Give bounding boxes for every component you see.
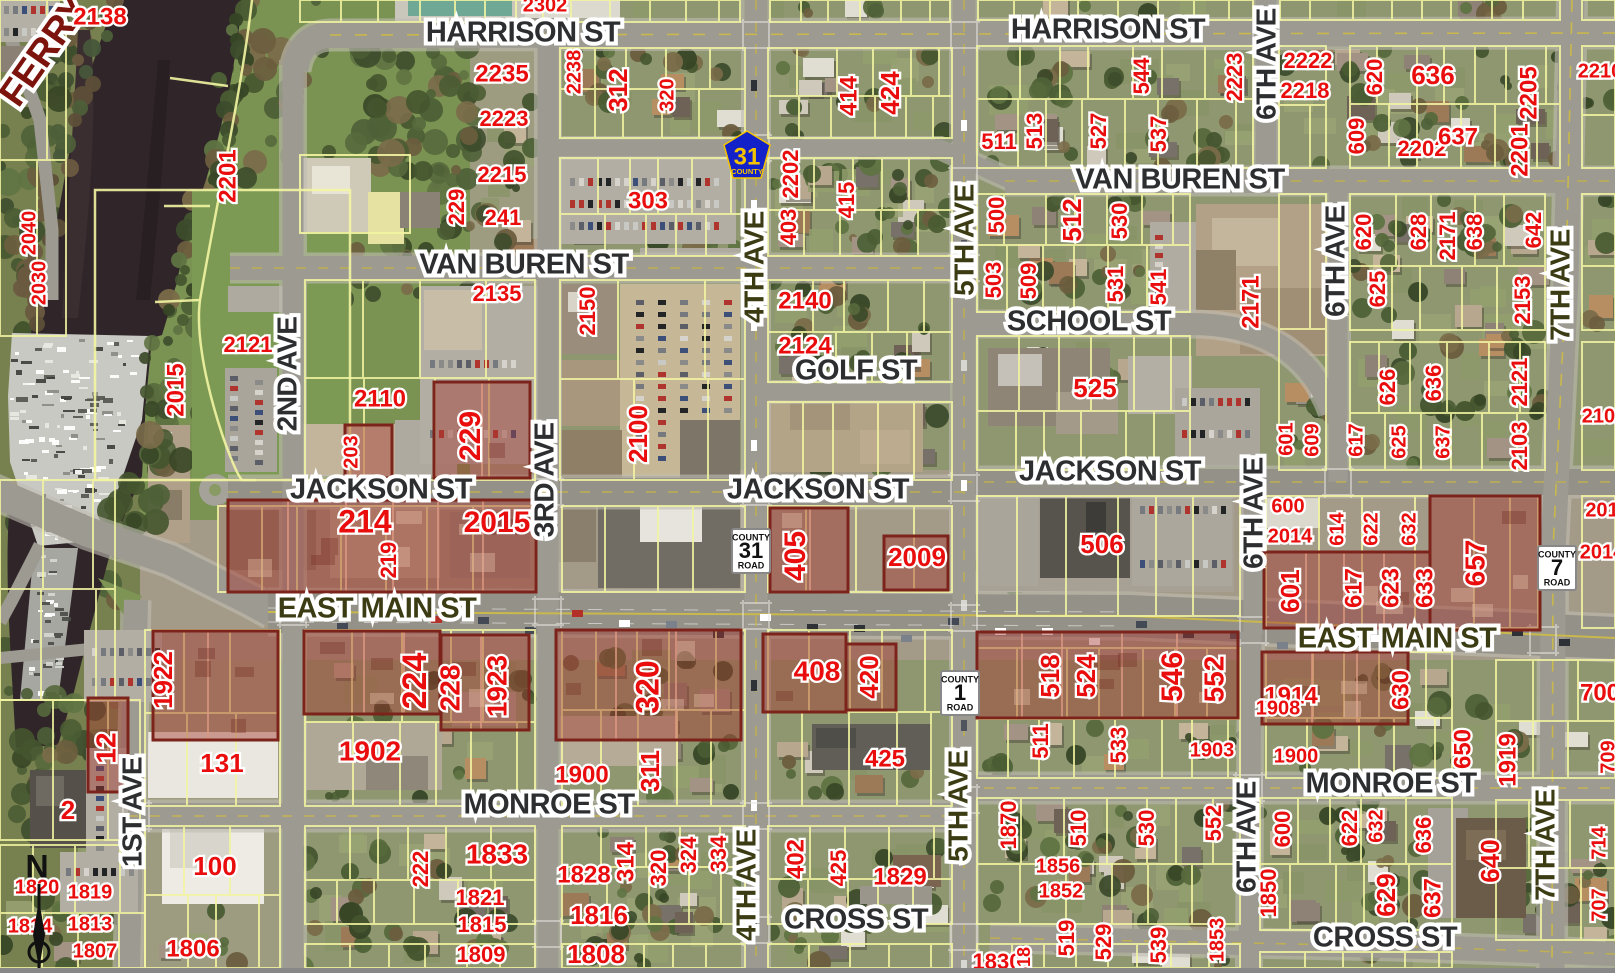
svg-text:2201: 2201 — [1506, 123, 1533, 176]
svg-text:2171: 2171 — [1237, 275, 1264, 328]
svg-text:636: 636 — [1411, 60, 1454, 90]
svg-text:530: 530 — [1107, 203, 1132, 240]
svg-text:632: 632 — [1365, 809, 1387, 842]
svg-text:714: 714 — [1588, 825, 1610, 859]
svg-text:531: 531 — [1103, 266, 1128, 303]
svg-text:529: 529 — [1091, 924, 1116, 961]
svg-text:1903: 1903 — [1190, 739, 1235, 761]
svg-text:314: 314 — [612, 841, 639, 882]
svg-text:617: 617 — [1345, 423, 1367, 456]
svg-text:625: 625 — [1388, 425, 1410, 458]
svg-text:6TH AVE: 6TH AVE — [1319, 205, 1350, 317]
svg-text:408: 408 — [794, 655, 841, 686]
svg-text:519: 519 — [1054, 920, 1079, 957]
svg-text:203: 203 — [340, 435, 362, 468]
svg-text:1828: 1828 — [557, 861, 610, 888]
svg-text:626: 626 — [1375, 369, 1400, 406]
svg-text:2238: 2238 — [563, 50, 585, 95]
svg-text:1902: 1902 — [339, 735, 401, 766]
svg-text:623: 623 — [1377, 568, 1404, 608]
svg-text:601: 601 — [1275, 422, 1297, 455]
svg-text:600: 600 — [1271, 495, 1304, 517]
svg-text:518: 518 — [1035, 654, 1065, 697]
svg-text:510: 510 — [1066, 810, 1091, 847]
svg-text:630: 630 — [1387, 670, 1414, 710]
svg-text:HARRISON ST: HARRISON ST — [1011, 14, 1206, 46]
svg-text:241: 241 — [485, 205, 522, 230]
svg-text:1850: 1850 — [1256, 869, 1281, 918]
svg-text:JACKSON ST: JACKSON ST — [727, 474, 910, 506]
svg-text:2215: 2215 — [478, 162, 527, 187]
svg-text:2223: 2223 — [1222, 53, 1247, 102]
svg-text:617: 617 — [1340, 568, 1367, 608]
svg-text:VAN BUREN ST: VAN BUREN ST — [1075, 164, 1285, 196]
svg-text:2140: 2140 — [778, 287, 831, 314]
svg-text:2103: 2103 — [1507, 422, 1532, 471]
svg-text:425: 425 — [865, 745, 905, 772]
svg-text:1852: 1852 — [1039, 880, 1084, 902]
svg-text:518: 518 — [1014, 947, 1034, 968]
svg-text:1806: 1806 — [166, 935, 219, 962]
svg-text:4TH AVE: 4TH AVE — [738, 211, 769, 323]
svg-text:1ST AVE: 1ST AVE — [116, 757, 147, 867]
svg-text:222: 222 — [408, 851, 433, 888]
svg-text:N: N — [25, 848, 48, 884]
svg-text:1923: 1923 — [481, 655, 512, 717]
svg-text:640: 640 — [1475, 839, 1505, 882]
svg-text:312: 312 — [603, 68, 633, 111]
svg-text:1900: 1900 — [555, 761, 608, 788]
svg-text:2302: 2302 — [523, 0, 568, 16]
svg-text:2218: 2218 — [1281, 78, 1330, 103]
svg-text:620: 620 — [1351, 214, 1376, 251]
svg-text:405: 405 — [779, 531, 812, 581]
svg-text:700: 700 — [1580, 679, 1615, 706]
svg-text:1: 1 — [954, 680, 966, 705]
svg-text:628: 628 — [1406, 214, 1431, 251]
svg-text:1900: 1900 — [1274, 745, 1319, 767]
svg-text:2014: 2014 — [1268, 525, 1313, 547]
svg-text:2040: 2040 — [18, 211, 40, 256]
svg-text:650: 650 — [1449, 729, 1476, 769]
svg-text:EAST MAIN ST: EAST MAIN ST — [1298, 623, 1497, 655]
svg-text:5TH AVE: 5TH AVE — [948, 184, 979, 296]
svg-text:527: 527 — [1086, 113, 1111, 150]
svg-text:2124: 2124 — [778, 332, 832, 359]
svg-text:CROSS ST: CROSS ST — [784, 904, 929, 936]
svg-text:EAST MAIN ST: EAST MAIN ST — [278, 593, 477, 625]
svg-text:530: 530 — [1134, 810, 1159, 847]
svg-text:1870: 1870 — [996, 801, 1021, 850]
svg-text:228: 228 — [434, 665, 465, 712]
svg-text:636: 636 — [1411, 817, 1436, 854]
svg-text:2205: 2205 — [1515, 66, 1542, 119]
svg-text:MONROE ST: MONROE ST — [463, 789, 635, 821]
svg-text:503: 503 — [981, 262, 1006, 299]
svg-text:637: 637 — [1419, 878, 1446, 918]
svg-text:2210: 2210 — [1578, 60, 1615, 82]
svg-text:2100: 2100 — [623, 405, 653, 463]
svg-text:636: 636 — [1421, 365, 1446, 402]
svg-text:2121: 2121 — [224, 332, 273, 357]
svg-text:509: 509 — [1016, 263, 1041, 300]
svg-text:1807: 1807 — [73, 940, 118, 962]
svg-text:1813: 1813 — [68, 913, 113, 935]
svg-text:2030: 2030 — [28, 261, 50, 306]
svg-text:3RD AVE: 3RD AVE — [528, 423, 559, 538]
svg-text:424: 424 — [875, 71, 905, 115]
svg-text:2223: 2223 — [480, 106, 529, 131]
svg-text:1819: 1819 — [68, 881, 113, 903]
svg-text:6TH AVE: 6TH AVE — [1237, 457, 1268, 569]
svg-text:637: 637 — [1438, 123, 1478, 150]
svg-text:JACKSON ST: JACKSON ST — [1019, 456, 1202, 488]
svg-text:511: 511 — [1028, 723, 1053, 759]
svg-text:1919: 1919 — [1494, 733, 1521, 786]
svg-text:303: 303 — [628, 187, 668, 214]
svg-text:552: 552 — [1201, 805, 1226, 842]
svg-text:2110: 2110 — [354, 385, 406, 412]
svg-text:544: 544 — [1129, 57, 1154, 94]
svg-text:525: 525 — [1073, 373, 1116, 403]
svg-text:2121: 2121 — [1507, 358, 1532, 407]
svg-text:2015: 2015 — [464, 506, 531, 539]
svg-text:609: 609 — [1344, 118, 1369, 155]
svg-text:2222: 2222 — [1284, 48, 1333, 73]
svg-text:415: 415 — [834, 182, 859, 219]
svg-text:1908: 1908 — [1256, 697, 1301, 719]
svg-text:402: 402 — [782, 839, 809, 879]
svg-text:707: 707 — [1588, 888, 1610, 921]
svg-text:320: 320 — [629, 660, 665, 713]
svg-text:2138: 2138 — [73, 3, 126, 30]
svg-text:1809: 1809 — [457, 942, 506, 967]
svg-text:546: 546 — [1156, 652, 1189, 702]
svg-text:2ND AVE: 2ND AVE — [271, 317, 302, 432]
svg-text:224: 224 — [396, 653, 434, 710]
svg-text:JACKSON ST: JACKSON ST — [290, 474, 473, 506]
svg-text:1821: 1821 — [456, 885, 505, 910]
svg-text:VAN BUREN ST: VAN BUREN ST — [419, 249, 629, 281]
svg-text:1922: 1922 — [148, 651, 178, 709]
svg-text:524: 524 — [1071, 654, 1101, 698]
svg-text:1816: 1816 — [570, 900, 628, 930]
svg-text:MONROE ST: MONROE ST — [1305, 768, 1477, 800]
svg-text:229: 229 — [444, 189, 469, 226]
svg-text:334: 334 — [706, 835, 731, 872]
svg-text:622: 622 — [1337, 810, 1362, 847]
svg-text:609: 609 — [1301, 423, 1323, 456]
svg-text:657: 657 — [1459, 540, 1490, 587]
svg-text:511: 511 — [981, 129, 1017, 154]
svg-text:414: 414 — [835, 75, 862, 116]
svg-text:1829: 1829 — [873, 863, 926, 890]
svg-text:7TH AVE: 7TH AVE — [1529, 789, 1560, 901]
svg-text:2202: 2202 — [778, 150, 803, 199]
svg-text:100: 100 — [193, 851, 236, 881]
svg-text:201: 201 — [1585, 499, 1615, 521]
svg-text:513: 513 — [1022, 113, 1047, 150]
svg-text:ROAD: ROAD — [1544, 577, 1571, 587]
svg-text:537: 537 — [1146, 116, 1171, 153]
svg-text:320: 320 — [646, 850, 671, 887]
svg-text:COUNTY: COUNTY — [731, 167, 763, 176]
svg-text:539: 539 — [1146, 927, 1171, 964]
svg-text:512: 512 — [1057, 198, 1087, 241]
svg-text:600: 600 — [1270, 811, 1295, 848]
svg-text:2171: 2171 — [1435, 212, 1460, 261]
svg-text:622: 622 — [1360, 512, 1382, 545]
svg-text:4TH AVE: 4TH AVE — [730, 829, 761, 941]
svg-text:500: 500 — [984, 197, 1009, 234]
svg-text:425: 425 — [826, 850, 851, 887]
svg-text:SCHOOL ST: SCHOOL ST — [1007, 306, 1172, 338]
svg-text:642: 642 — [1521, 212, 1546, 249]
svg-text:320: 320 — [656, 78, 678, 111]
svg-text:601: 601 — [1275, 569, 1305, 612]
svg-text:ROAD: ROAD — [738, 560, 765, 570]
svg-text:7TH AVE: 7TH AVE — [1544, 229, 1575, 341]
svg-text:2135: 2135 — [473, 281, 522, 306]
svg-text:2014: 2014 — [1580, 541, 1615, 563]
svg-text:5TH AVE: 5TH AVE — [942, 750, 973, 862]
svg-text:1815: 1815 — [458, 912, 507, 937]
svg-text:1856: 1856 — [1036, 855, 1081, 877]
svg-text:403: 403 — [776, 209, 801, 246]
svg-text:2: 2 — [61, 795, 75, 825]
svg-text:GOLF ST: GOLF ST — [795, 355, 918, 387]
svg-text:ROAD: ROAD — [947, 702, 974, 712]
svg-text:533: 533 — [1106, 727, 1131, 764]
svg-text:2150: 2150 — [575, 287, 600, 336]
svg-text:31: 31 — [739, 538, 763, 563]
svg-text:311: 311 — [635, 750, 665, 792]
svg-text:2153: 2153 — [1510, 276, 1535, 325]
svg-text:6TH AVE: 6TH AVE — [1250, 8, 1281, 120]
svg-text:324: 324 — [676, 836, 701, 873]
svg-text:1808: 1808 — [567, 939, 625, 968]
svg-text:629: 629 — [1371, 873, 1401, 916]
svg-text:1853: 1853 — [1206, 918, 1228, 963]
svg-text:2015: 2015 — [162, 363, 189, 416]
svg-text:CROSS ST: CROSS ST — [1313, 922, 1458, 954]
svg-text:2235: 2235 — [475, 60, 528, 87]
svg-text:214: 214 — [338, 503, 392, 539]
svg-text:632: 632 — [1398, 512, 1420, 545]
svg-text:7: 7 — [1551, 555, 1563, 580]
svg-text:HARRISON ST: HARRISON ST — [426, 17, 621, 49]
svg-text:131: 131 — [200, 748, 243, 778]
svg-text:633: 633 — [1411, 568, 1438, 608]
svg-text:637: 637 — [1432, 425, 1454, 458]
svg-text:12: 12 — [90, 732, 121, 763]
svg-text:2009: 2009 — [888, 542, 946, 572]
svg-text:219: 219 — [376, 542, 401, 579]
svg-text:620: 620 — [1362, 59, 1387, 96]
svg-text:709: 709 — [1597, 740, 1615, 773]
svg-text:625: 625 — [1365, 271, 1390, 308]
svg-text:614: 614 — [1326, 511, 1348, 545]
svg-text:506: 506 — [1080, 529, 1123, 559]
svg-text:1833: 1833 — [466, 838, 528, 869]
svg-text:552: 552 — [1198, 656, 1229, 703]
svg-text:2201: 2201 — [214, 149, 241, 202]
svg-text:1814: 1814 — [8, 915, 53, 937]
svg-text:420: 420 — [854, 655, 884, 698]
svg-text:541: 541 — [1146, 269, 1171, 306]
svg-text:229: 229 — [454, 411, 487, 461]
svg-text:2101: 2101 — [1582, 405, 1615, 427]
svg-text:638: 638 — [1462, 214, 1487, 251]
